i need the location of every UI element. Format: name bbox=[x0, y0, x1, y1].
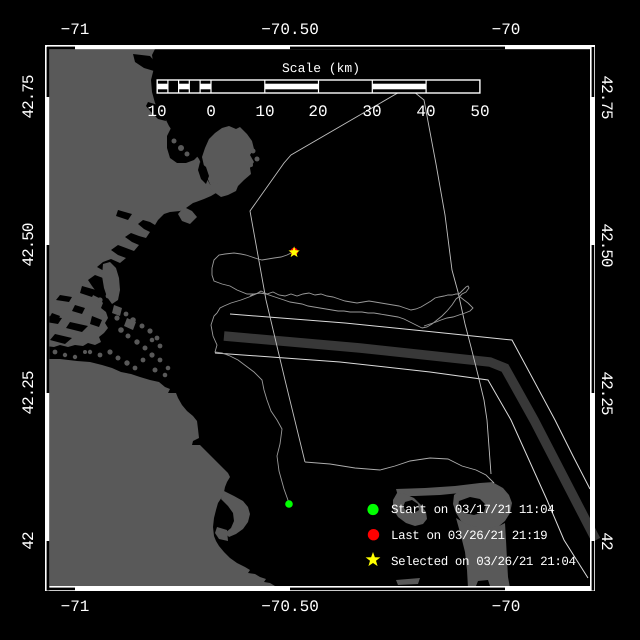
svg-text:−71: −71 bbox=[61, 21, 90, 39]
svg-text:−70: −70 bbox=[492, 598, 521, 616]
svg-text:10: 10 bbox=[255, 103, 274, 121]
svg-text:42.25: 42.25 bbox=[20, 371, 38, 414]
svg-text:−70: −70 bbox=[492, 21, 521, 39]
svg-text:42.50: 42.50 bbox=[20, 223, 38, 266]
svg-text:30: 30 bbox=[362, 103, 381, 121]
svg-text:42: 42 bbox=[20, 532, 38, 550]
svg-text:42.75: 42.75 bbox=[20, 75, 38, 118]
svg-text:Scale (km): Scale (km) bbox=[282, 61, 360, 76]
svg-text:Last on 03/26/21 21:19: Last on 03/26/21 21:19 bbox=[391, 529, 547, 543]
svg-text:Selected on 03/26/21 21:04: Selected on 03/26/21 21:04 bbox=[391, 555, 576, 569]
svg-text:42.50: 42.50 bbox=[597, 223, 615, 266]
svg-text:Start on 03/17/21 11:04: Start on 03/17/21 11:04 bbox=[391, 503, 554, 517]
svg-text:42: 42 bbox=[597, 532, 615, 550]
svg-text:42.75: 42.75 bbox=[597, 75, 615, 118]
svg-text:−70.50: −70.50 bbox=[261, 598, 319, 616]
svg-text:−70.50: −70.50 bbox=[261, 21, 319, 39]
svg-text:20: 20 bbox=[308, 103, 327, 121]
svg-text:10: 10 bbox=[147, 103, 166, 121]
svg-text:40: 40 bbox=[416, 103, 435, 121]
svg-text:50: 50 bbox=[470, 103, 489, 121]
svg-text:42.25: 42.25 bbox=[597, 371, 615, 414]
svg-text:−71: −71 bbox=[61, 598, 90, 616]
svg-text:0: 0 bbox=[206, 103, 216, 121]
